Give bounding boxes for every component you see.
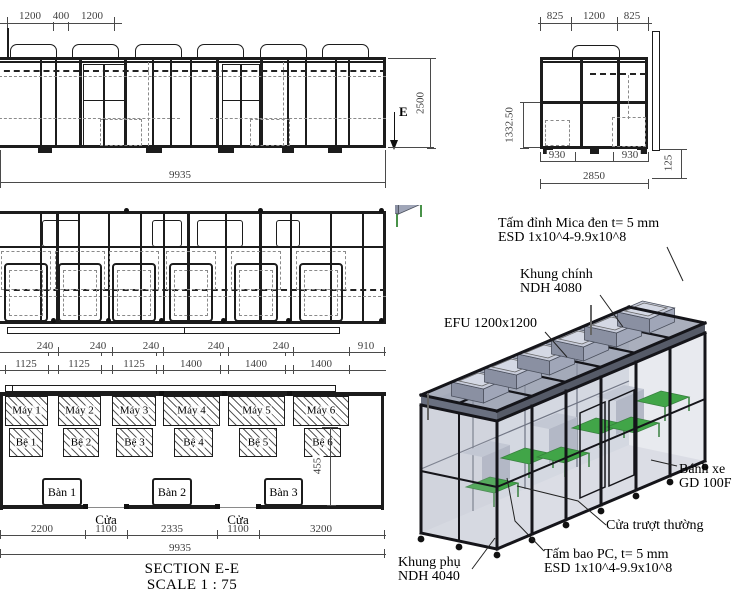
drawing-sheet: 1200 400 1200 xyxy=(0,0,740,604)
base-box: Bệ 2 xyxy=(63,428,99,457)
drawing-lndv xyxy=(628,75,629,119)
machine-label: Máy 1 xyxy=(11,406,41,417)
dim-tick xyxy=(112,347,113,356)
base-box: Bệ 4 xyxy=(174,428,213,457)
base-box: Bệ 1 xyxy=(9,428,43,457)
dim-line xyxy=(0,535,386,536)
bottom-wall xyxy=(259,505,384,509)
isometric-view xyxy=(395,205,740,604)
circle xyxy=(598,508,605,515)
annotation-door: Cửa trượt thường xyxy=(606,519,703,534)
dim-tick xyxy=(163,365,164,374)
side-panel xyxy=(652,31,660,151)
dim-tick xyxy=(220,365,221,374)
dim-tick xyxy=(5,365,6,374)
dim-label: 240 xyxy=(271,341,292,352)
dim-label: 1125 xyxy=(66,359,92,370)
dim-tick xyxy=(327,427,336,428)
base-label: Bệ 3 xyxy=(123,437,145,448)
plan-view-section: 240 240 240 240 240 910 1125 1125 1125 1… xyxy=(0,0,400,604)
machine-label: Máy 6 xyxy=(306,406,336,417)
base-label: Bệ 1 xyxy=(15,437,37,448)
machine-box: Máy 4 xyxy=(163,396,220,426)
dim-tick xyxy=(648,17,649,31)
circle xyxy=(529,537,536,544)
dim-tick xyxy=(571,17,572,31)
dim-tick xyxy=(540,152,541,162)
dim-tick xyxy=(228,347,229,356)
polygon xyxy=(399,205,424,214)
drawing-sq xyxy=(287,391,292,396)
polyline xyxy=(667,247,683,281)
left-wall xyxy=(0,392,3,510)
drawing-ln xyxy=(542,61,646,63)
circle xyxy=(494,552,501,559)
drawing-sq xyxy=(256,504,261,509)
dim-label: 2335 xyxy=(159,524,185,535)
dim-tick xyxy=(112,365,113,374)
dim-tick xyxy=(678,178,687,179)
dim-label: 1100 xyxy=(225,524,251,535)
dim-tick xyxy=(58,365,59,374)
dim-label: 1400 xyxy=(178,359,204,370)
efu-unit xyxy=(395,205,424,214)
drawing-ln xyxy=(85,507,127,508)
annotation-main-frame: NDH 4080 xyxy=(520,282,582,297)
dim-tick xyxy=(648,179,649,189)
drawing-ln xyxy=(217,507,259,508)
dim-line xyxy=(0,370,386,371)
bottom-wall xyxy=(127,505,217,509)
dim-tick xyxy=(156,365,157,374)
dim-tick xyxy=(540,17,541,31)
dim-tick xyxy=(0,549,1,558)
base-box: Bệ 5 xyxy=(239,428,277,457)
dim-tick xyxy=(520,148,529,149)
dim-tick xyxy=(617,17,618,31)
circle xyxy=(667,479,674,486)
top-wall xyxy=(0,392,386,396)
base-label: Bệ 5 xyxy=(247,437,269,448)
dim-tick xyxy=(648,152,649,162)
dim-tick xyxy=(101,365,102,374)
dim-tick xyxy=(613,152,614,162)
base-label: Bệ 4 xyxy=(182,437,204,448)
dim-label: 1400 xyxy=(243,359,269,370)
machine-box: Máy 5 xyxy=(228,396,285,426)
section-title: SECTION E-E xyxy=(145,561,240,578)
table-box: Bàn 2 xyxy=(152,478,192,506)
dim-label: 9935 xyxy=(167,543,193,554)
dim-label: 455 xyxy=(313,456,324,477)
dim-tick xyxy=(349,347,350,356)
machine-label: Máy 5 xyxy=(241,406,271,417)
dim-tick xyxy=(127,530,128,539)
dim-tick xyxy=(163,347,164,356)
dim-tick xyxy=(0,530,1,539)
dim-label: 125 xyxy=(664,153,675,174)
drawing-sq xyxy=(83,504,88,509)
dim-tick xyxy=(384,549,385,558)
dim-tick xyxy=(384,530,385,539)
annotation-top-panel: ESD 1x10^4-9.9x10^8 xyxy=(498,231,626,246)
circle xyxy=(563,522,570,529)
dim-tick xyxy=(540,179,541,189)
dim-label: 910 xyxy=(356,341,377,352)
dim-label: 825 xyxy=(545,11,566,22)
base-box: Bệ 6 xyxy=(304,428,341,457)
dim-line xyxy=(540,183,648,184)
drawing-sq xyxy=(124,504,129,509)
dim-label: 1125 xyxy=(121,359,147,370)
dim-tick xyxy=(293,365,294,374)
dim-tick xyxy=(384,347,385,356)
machine-box: Máy 1 xyxy=(5,396,48,426)
circle xyxy=(418,536,425,543)
drawing-drect xyxy=(612,117,646,147)
annotation-sub-frame: NDH 4040 xyxy=(398,570,460,585)
drawing-ln xyxy=(542,101,646,104)
machine-box: Máy 3 xyxy=(112,396,156,426)
annotation-wheel: GD 100F xyxy=(679,477,732,492)
dim-line xyxy=(538,23,652,24)
dim-label: 1332.50 xyxy=(505,105,516,145)
dim-label: 2200 xyxy=(29,524,55,535)
dim-label: 1200 xyxy=(581,11,607,22)
dim-tick xyxy=(520,102,529,103)
bottom-wall xyxy=(0,505,85,509)
drawing-ln xyxy=(12,385,13,392)
dim-tick xyxy=(228,365,229,374)
table-label: Bàn 2 xyxy=(157,486,187,498)
polygon xyxy=(395,205,399,214)
right-wall xyxy=(381,392,384,510)
base-box: Bệ 3 xyxy=(116,428,153,457)
circle xyxy=(456,544,463,551)
dim-label: 2850 xyxy=(581,171,607,182)
dim-line xyxy=(330,427,331,505)
dim-label: 1125 xyxy=(13,359,39,370)
dim-tick xyxy=(58,347,59,356)
dim-tick xyxy=(217,530,218,539)
circle xyxy=(633,493,640,500)
dim-label: 3200 xyxy=(308,524,334,535)
annotation-efu: EFU 1200x1200 xyxy=(444,317,537,332)
section-scale: SCALE 1 : 75 xyxy=(147,577,237,594)
machine-label: Máy 4 xyxy=(176,406,206,417)
dim-tick xyxy=(293,347,294,356)
dim-tick xyxy=(327,505,336,506)
dim-tick xyxy=(85,530,86,539)
dim-tick xyxy=(285,365,286,374)
dim-tick xyxy=(678,149,687,150)
drawing-sq xyxy=(222,391,227,396)
table-label: Bàn 1 xyxy=(47,486,77,498)
dim-label: 825 xyxy=(622,11,643,22)
dim-line xyxy=(681,149,682,178)
dim-tick xyxy=(48,365,49,374)
dim-tick xyxy=(575,152,576,162)
dim-label: 240 xyxy=(88,341,109,352)
dim-label: 240 xyxy=(35,341,56,352)
machine-label: Máy 2 xyxy=(64,406,94,417)
drawing-lnd xyxy=(590,73,646,75)
dim-label: 930 xyxy=(547,150,568,161)
drawing-sq xyxy=(215,504,220,509)
machine-box: Máy 2 xyxy=(58,396,101,426)
drawing-drect xyxy=(545,120,570,146)
dim-line xyxy=(523,102,524,148)
dim-label: 240 xyxy=(141,341,162,352)
dim-line xyxy=(0,554,386,555)
dim-line xyxy=(540,161,648,162)
dim-label: 1400 xyxy=(308,359,334,370)
dim-label: 240 xyxy=(206,341,227,352)
table-label: Bàn 3 xyxy=(268,486,298,498)
dim-label: 1100 xyxy=(93,524,119,535)
table-box: Bàn 1 xyxy=(42,478,82,506)
dim-tick xyxy=(259,530,260,539)
table-box: Bàn 3 xyxy=(264,478,303,506)
base-label: Bệ 2 xyxy=(70,437,92,448)
drawing-ln xyxy=(590,149,599,154)
dim-line xyxy=(0,352,386,353)
dim-tick xyxy=(349,365,350,374)
machine-label: Máy 3 xyxy=(119,406,149,417)
annotation-side-panel: ESD 1x10^4-9.9x10^8 xyxy=(544,562,672,577)
dim-label: 930 xyxy=(620,150,641,161)
machine-box: Máy 6 xyxy=(293,396,349,426)
